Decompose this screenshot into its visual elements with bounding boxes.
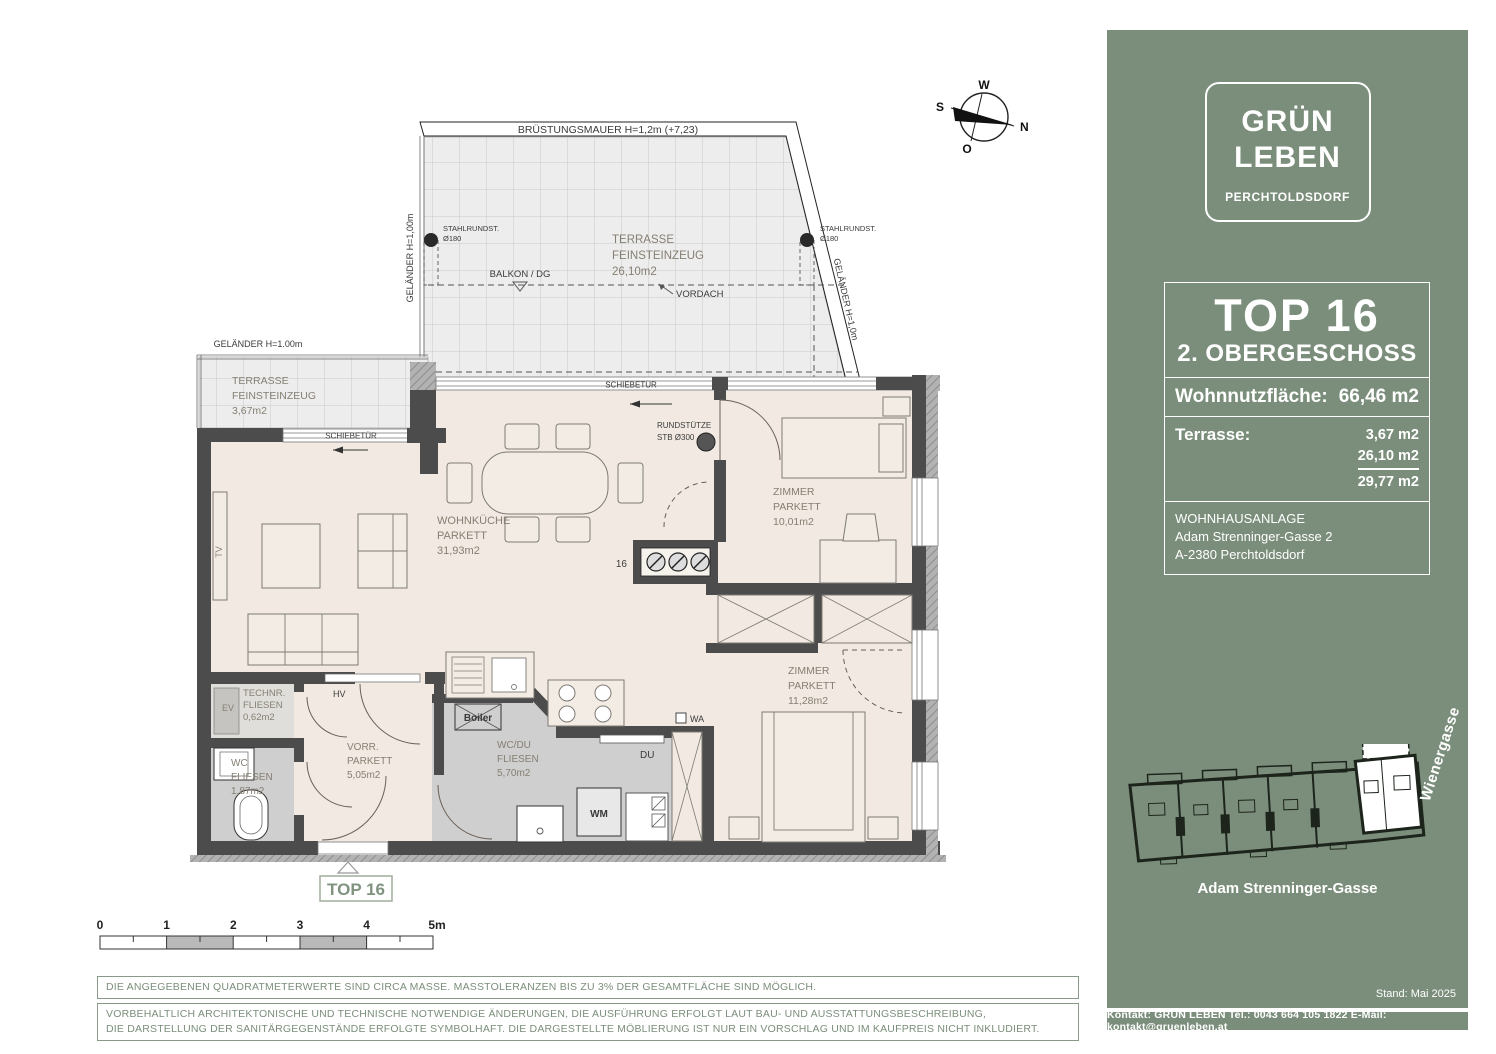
info-sidebar: GRÜN LEBEN PERCHTOLDSDORF TOP 16 2. OBER… — [1107, 30, 1468, 1030]
disclaimer-box-1: DIE ANGEGEBENEN QUADRATMETERWERTE SIND C… — [97, 976, 1079, 999]
svg-text:ZIMMER: ZIMMER — [788, 665, 830, 677]
scale-0: 0 — [97, 918, 104, 932]
svg-text:TERRASSE: TERRASSE — [232, 375, 289, 387]
terrace-values: 3,67 m2 26,10 m2 29,77 m2 — [1358, 425, 1419, 493]
bruestungsmauer-label: BRÜSTUNGSMAUER H=1,2m (+7,23) — [518, 124, 698, 136]
scale-5m: 5m — [428, 918, 445, 932]
svg-text:FEINSTEINZEUG: FEINSTEINZEUG — [232, 390, 316, 402]
svg-text:STAHLRUNDST.: STAHLRUNDST. — [820, 224, 876, 233]
address-line-3: A-2380 Perchtoldsdorf — [1175, 546, 1419, 564]
svg-text:FLIESEN: FLIESEN — [497, 754, 539, 765]
wm-label: WM — [590, 809, 608, 820]
stand-date: Stand: Mai 2025 — [1376, 988, 1456, 1000]
svg-text:TECHNR.: TECHNR. — [243, 688, 285, 699]
site-plan — [1119, 744, 1439, 894]
gelaender-side-label: GELÄNDER H=1.00m — [214, 339, 303, 349]
compass-w: W — [978, 78, 990, 92]
wa-label: WA — [690, 714, 704, 724]
svg-text:11,28m2: 11,28m2 — [788, 695, 828, 707]
window — [912, 478, 938, 546]
unit-floor: 2. OBERGESCHOSS — [1165, 339, 1429, 369]
disclaimer-line: DIE ANGEGEBENEN QUADRATMETERWERTE SIND C… — [106, 980, 1070, 995]
svg-text:STAHLRUNDST.: STAHLRUNDST. — [443, 224, 499, 233]
terrace-value-2: 26,10 m2 — [1358, 446, 1419, 470]
svg-text:VORR.: VORR. — [347, 742, 379, 753]
living-area-row: Wohnnutzfläche: 66,46 m2 — [1165, 377, 1429, 416]
nightstand — [868, 817, 898, 839]
rundstuetze-label: RUNDSTÜTZE — [657, 421, 711, 430]
shower-rail — [600, 735, 664, 743]
terrace-value-total: 29,77 m2 — [1358, 472, 1419, 493]
svg-text:SCHIEBETÜR: SCHIEBETÜR — [325, 432, 377, 441]
logo-subtitle: PERCHTOLDSDORF — [1215, 190, 1361, 204]
logo-line-1: GRÜN — [1215, 104, 1361, 140]
nightstand — [729, 817, 759, 839]
svg-text:Ø180: Ø180 — [443, 234, 461, 243]
svg-text:WOHNKÜCHE: WOHNKÜCHE — [437, 515, 510, 527]
living-area-label: Wohnnutzfläche: — [1175, 386, 1328, 408]
svg-text:PARKETT: PARKETT — [347, 756, 392, 767]
balkon-dg-label: BALKON / DG — [490, 269, 551, 280]
dining-table — [482, 452, 608, 514]
scale-3: 3 — [297, 918, 304, 932]
disclaimer-notes: DIE ANGEGEBENEN QUADRATMETERWERTE SIND C… — [97, 976, 1079, 1041]
compass-n: N — [1020, 120, 1029, 134]
street-label-adam-strenninger: Adam Strenninger-Gasse — [1107, 880, 1468, 897]
address-line-1: WOHNHAUSANLAGE — [1175, 510, 1419, 528]
bed-double — [762, 712, 865, 842]
svg-text:3,67m2: 3,67m2 — [232, 405, 267, 417]
desk-chair — [843, 514, 879, 541]
shaft-label: 16 — [616, 559, 628, 570]
logo-badge: GRÜN LEBEN PERCHTOLDSDORF — [1205, 82, 1371, 222]
svg-text:FLIESEN: FLIESEN — [231, 772, 273, 783]
svg-text:STB Ø300: STB Ø300 — [657, 433, 695, 442]
compass-o: O — [962, 142, 971, 156]
boiler-label: Boiler — [464, 713, 492, 724]
svg-text:WC: WC — [231, 758, 248, 769]
ev-label: EV — [222, 703, 234, 713]
window — [912, 762, 938, 830]
scale-bar: 0 1 2 3 4 5m — [97, 918, 446, 949]
svg-text:26,10m2: 26,10m2 — [612, 266, 657, 278]
toilet — [234, 790, 268, 840]
unit-info-panel: TOP 16 2. OBERGESCHOSS Wohnnutzfläche: 6… — [1164, 282, 1430, 575]
svg-text:PARKETT: PARKETT — [437, 530, 487, 542]
svg-text:TERRASSE: TERRASSE — [612, 234, 674, 246]
svg-text:0,62m2: 0,62m2 — [243, 712, 275, 723]
window-door — [912, 630, 938, 700]
coffee-table — [262, 524, 320, 588]
terrace-label: Terrasse: — [1175, 425, 1250, 445]
svg-text:PARKETT: PARKETT — [788, 680, 836, 692]
svg-text:5,70m2: 5,70m2 — [497, 768, 531, 779]
unit-header-section: TOP 16 2. OBERGESCHOSS — [1165, 293, 1429, 369]
scale-2: 2 — [230, 918, 237, 932]
tv-label: TV — [214, 546, 224, 558]
compass-s: S — [936, 100, 944, 114]
scale-4: 4 — [363, 918, 370, 932]
scale-1: 1 — [163, 918, 170, 932]
terrace-value-1: 3,67 m2 — [1358, 425, 1419, 446]
svg-text:ZIMMER: ZIMMER — [773, 486, 815, 498]
svg-text:PARKETT: PARKETT — [773, 501, 821, 513]
vordach-label: VORDACH — [676, 289, 724, 300]
entry-marker-label: TOP 16 — [327, 880, 385, 899]
living-area-value: 66,46 m2 — [1339, 386, 1419, 408]
svg-text:1,87m2: 1,87m2 — [231, 786, 265, 797]
contact-footer: Kontakt: GRÜN LEBEN Tel.: 0043 664 105 1… — [1107, 1012, 1468, 1030]
svg-text:WC/DU: WC/DU — [497, 740, 531, 751]
svg-text:31,93m2: 31,93m2 — [437, 545, 480, 557]
svg-text:Ø180: Ø180 — [820, 234, 838, 243]
svg-text:FLIESEN: FLIESEN — [243, 700, 283, 711]
sofa — [248, 614, 358, 665]
logo-line-2: LEBEN — [1215, 140, 1361, 176]
floorplan-drawing: W S N O BRÜSTUNGSMAUER H=1,2m (+7,23) GE… — [0, 0, 1107, 965]
svg-text:SCHIEBETÜR: SCHIEBETÜR — [605, 381, 657, 390]
washbasin — [517, 806, 563, 842]
gelaender-left-label: GELÄNDER H=1,00m — [405, 214, 415, 303]
side-terrace: GELÄNDER H=1.00m TERRASSE FEINSTEINZEUG … — [197, 339, 428, 428]
top-terrace: BRÜSTUNGSMAUER H=1,2m (+7,23) GELÄNDER H… — [405, 122, 876, 380]
hv-label: HV — [333, 689, 346, 699]
svg-text:10,01m2: 10,01m2 — [773, 516, 814, 528]
address-section: WOHNHAUSANLAGE Adam Strenninger-Gasse 2 … — [1165, 501, 1429, 574]
svg-text:FEINSTEINZEUG: FEINSTEINZEUG — [612, 250, 704, 262]
cooktop — [548, 680, 624, 726]
disclaimer-box-2: VORBEHALTLICH ARCHITEKTONISCHE UND TECHN… — [97, 1003, 1079, 1041]
entry-marker: TOP 16 — [320, 862, 392, 901]
tv-board — [213, 492, 227, 600]
disclaimer-line: VORBEHALTLICH ARCHITEKTONISCHE UND TECHN… — [106, 1007, 1070, 1022]
compass-rose: W S N O — [936, 78, 1029, 156]
du-label: DU — [640, 750, 654, 761]
steel-post-label-right: STAHLRUNDST. Ø180 — [820, 224, 876, 243]
disclaimer-line: DIE DARSTELLUNG DER SANITÄRGEGENSTÄNDE E… — [106, 1022, 1070, 1037]
desk — [820, 540, 896, 583]
address-line-2: Adam Strenninger-Gasse 2 — [1175, 528, 1419, 546]
unit-title: TOP 16 — [1165, 293, 1429, 339]
highlighted-unit — [1355, 755, 1422, 833]
nightstand — [883, 397, 910, 416]
terrace-row: Terrasse: 3,67 m2 26,10 m2 29,77 m2 — [1165, 416, 1429, 501]
svg-text:5,05m2: 5,05m2 — [347, 770, 381, 781]
